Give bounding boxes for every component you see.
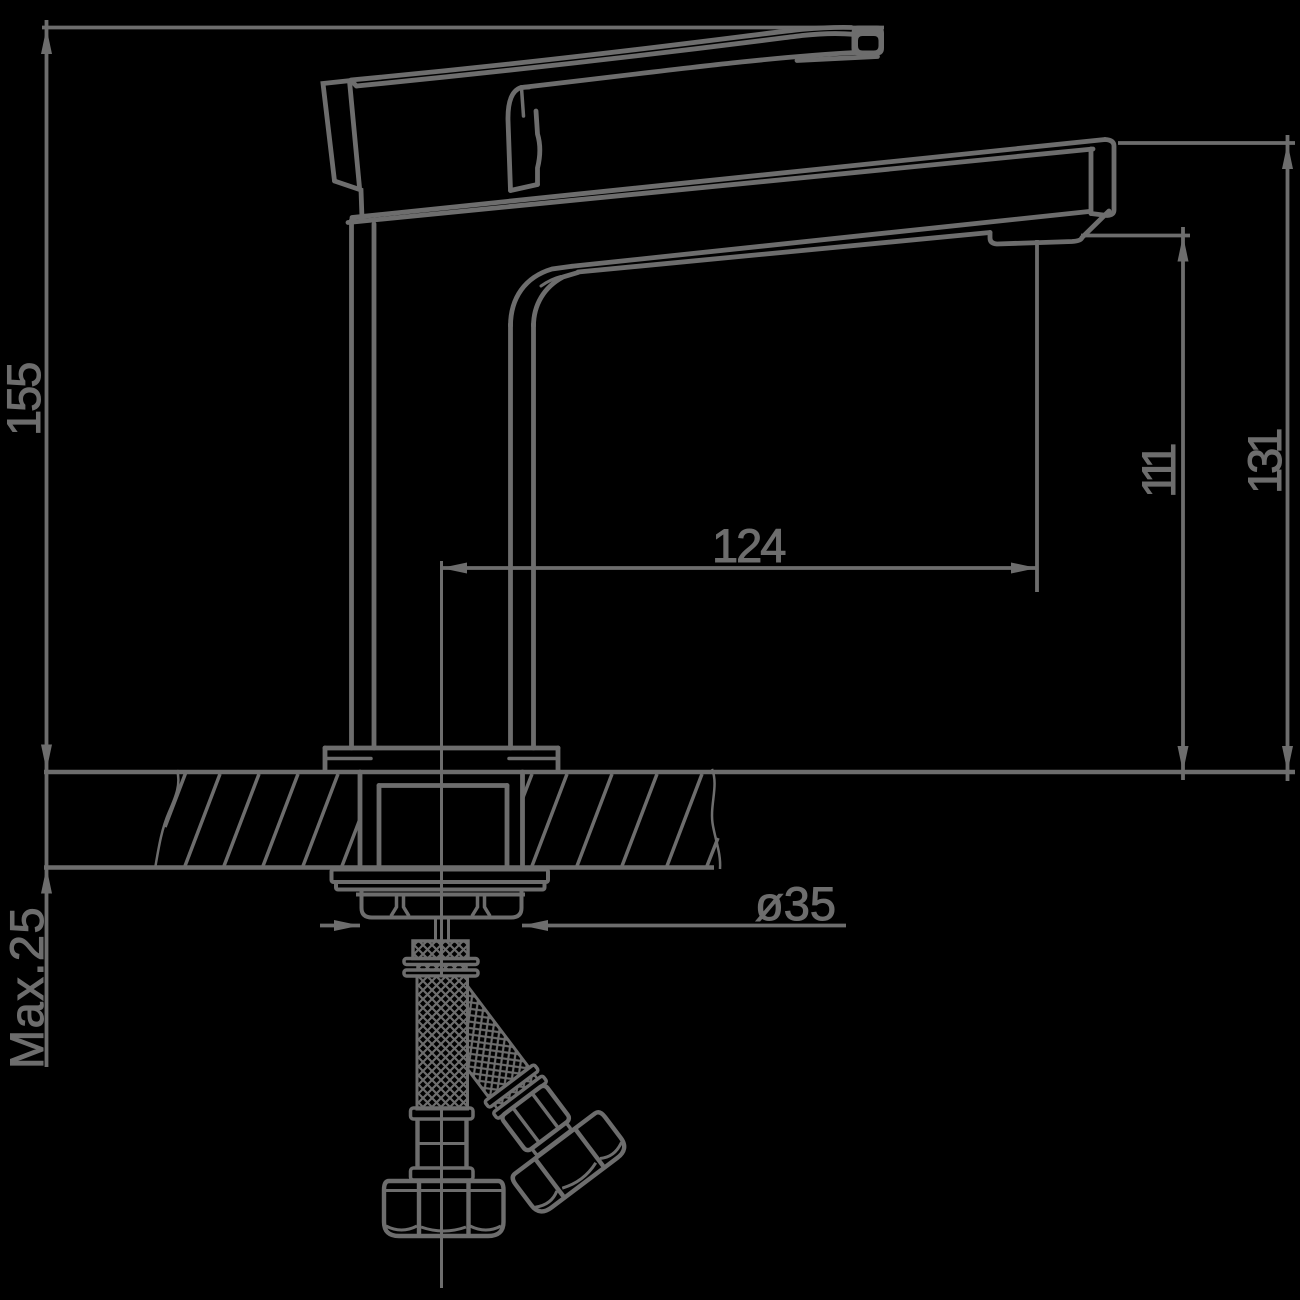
- svg-text:111: 111: [1132, 445, 1185, 498]
- svg-text:ø35: ø35: [755, 877, 836, 930]
- svg-text:Max.25: Max.25: [0, 906, 53, 1069]
- svg-text:124: 124: [712, 519, 785, 572]
- svg-text:131: 131: [1238, 430, 1291, 494]
- svg-text:155: 155: [0, 363, 50, 436]
